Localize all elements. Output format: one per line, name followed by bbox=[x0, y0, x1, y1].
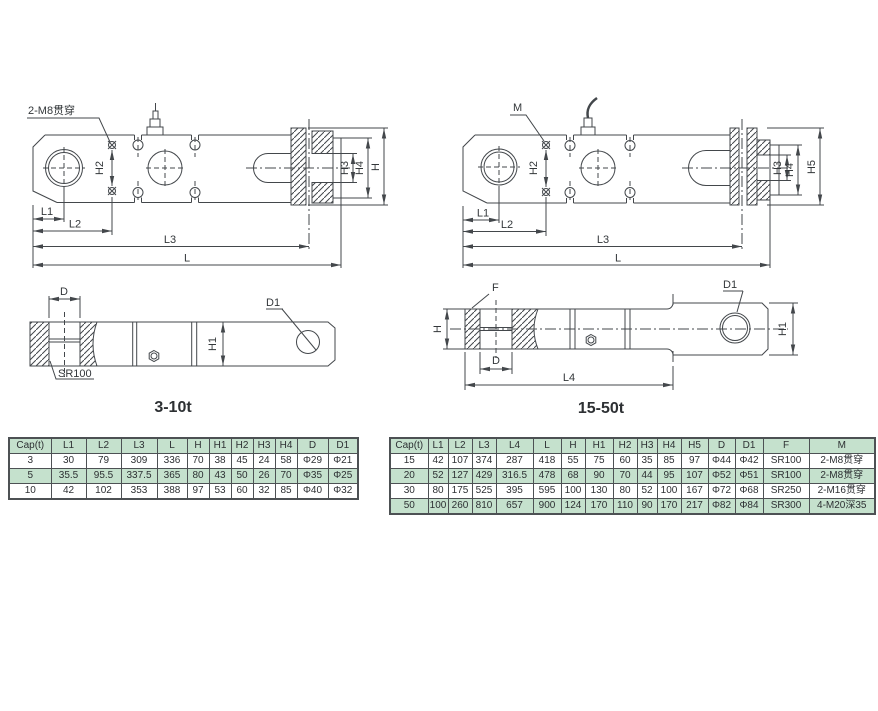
dim-label-h4: H4 bbox=[784, 163, 796, 177]
drawing-top-view-15-50t: F H D L4 D1 bbox=[435, 270, 845, 420]
column-header: H3 bbox=[253, 438, 275, 454]
table-row: 2052127429316.54786890704495107Φ52Φ51SR1… bbox=[390, 469, 875, 484]
table-cell: 337.5 bbox=[121, 469, 157, 484]
thread-callout-label: M bbox=[513, 102, 522, 114]
table-cell: 127 bbox=[448, 469, 472, 484]
table-cell: 110 bbox=[613, 499, 637, 515]
table-cell: 100 bbox=[657, 484, 681, 499]
table-cell: 15 bbox=[390, 454, 428, 469]
table-cell: 167 bbox=[681, 484, 708, 499]
dim-label-h3: H3 bbox=[339, 161, 351, 175]
table-row: 10421023533889753603285Φ40Φ32 bbox=[9, 484, 358, 500]
table-cell: 429 bbox=[472, 469, 496, 484]
body-steps bbox=[133, 322, 197, 366]
table-cell: 5 bbox=[9, 469, 51, 484]
column-header: L2 bbox=[448, 438, 472, 454]
column-header: L3 bbox=[472, 438, 496, 454]
column-header: H4 bbox=[275, 438, 297, 454]
table-row: 30801755253955951001308052100167Φ72Φ68SR… bbox=[390, 484, 875, 499]
column-header: H5 bbox=[681, 438, 708, 454]
table-cell: 365 bbox=[157, 469, 187, 484]
cable-gland bbox=[581, 98, 597, 135]
table-cell: 525 bbox=[472, 484, 496, 499]
column-header: L bbox=[157, 438, 187, 454]
table-cell: 53 bbox=[209, 484, 231, 500]
table-cell: Φ52 bbox=[708, 469, 735, 484]
table-cell: 79 bbox=[86, 454, 121, 469]
thread-holes-m8 bbox=[108, 141, 116, 195]
table-cell: Φ84 bbox=[735, 499, 763, 515]
column-header: H2 bbox=[231, 438, 253, 454]
table-cell: Φ29 bbox=[297, 454, 328, 469]
table-cell: 130 bbox=[585, 484, 613, 499]
dim-label-h5: H5 bbox=[806, 160, 818, 174]
table-row: 5010026081065790012417011090170217Φ82Φ84… bbox=[390, 499, 875, 515]
seal-screw bbox=[149, 351, 159, 362]
column-header: H1 bbox=[585, 438, 613, 454]
table-row: 535.595.5337.53658043502670Φ35Φ25 bbox=[9, 469, 358, 484]
table-cell: 107 bbox=[681, 469, 708, 484]
column-header: H2 bbox=[613, 438, 637, 454]
table-cell: Φ25 bbox=[328, 469, 358, 484]
column-header: L2 bbox=[86, 438, 121, 454]
table-cell: 70 bbox=[613, 469, 637, 484]
table-cell: Φ44 bbox=[708, 454, 735, 469]
drawing-side-view-15-50t: H2 M bbox=[435, 95, 845, 280]
table-cell: 52 bbox=[637, 484, 657, 499]
table-cell: 478 bbox=[533, 469, 561, 484]
table-cell: 2-M16贯穿 bbox=[809, 484, 875, 499]
table-cell: 35 bbox=[637, 454, 657, 469]
dim-label-h: H bbox=[370, 163, 382, 171]
drawing-title-3-10t: 3-10t bbox=[154, 399, 192, 416]
dim-label-f: F bbox=[492, 282, 499, 294]
beam-outline bbox=[33, 135, 291, 203]
column-header: H bbox=[187, 438, 209, 454]
table-cell: 595 bbox=[533, 484, 561, 499]
table-cell: 374 bbox=[472, 454, 496, 469]
table-cell: 336 bbox=[157, 454, 187, 469]
dim-label-l: L bbox=[184, 253, 190, 265]
center-bore bbox=[579, 149, 617, 187]
table-cell: 50 bbox=[390, 499, 428, 515]
table-cell: 2-M8贯穿 bbox=[809, 454, 875, 469]
table-cell: 24 bbox=[253, 454, 275, 469]
column-header: F bbox=[763, 438, 809, 454]
dim-label-d: D bbox=[492, 355, 500, 367]
column-header: L3 bbox=[121, 438, 157, 454]
dim-label-l3: L3 bbox=[164, 234, 176, 246]
table-cell: 30 bbox=[51, 454, 86, 469]
table-cell: 810 bbox=[472, 499, 496, 515]
table-cell: 124 bbox=[561, 499, 585, 515]
f-callout-leader bbox=[472, 294, 489, 308]
table-cell: Φ42 bbox=[735, 454, 763, 469]
table-cell: Φ21 bbox=[328, 454, 358, 469]
thread-callout-label: 2-M8贯穿 bbox=[28, 103, 75, 117]
column-header: D bbox=[708, 438, 735, 454]
table-cell: Φ82 bbox=[708, 499, 735, 515]
table-cell: SR300 bbox=[763, 499, 809, 515]
table-cell: 102 bbox=[86, 484, 121, 500]
drawing-side-view-3-10t: H2 2-M8贯穿 bbox=[15, 95, 395, 280]
table-cell: 50 bbox=[231, 469, 253, 484]
bar-outline bbox=[30, 322, 335, 366]
dim-label-h2: H2 bbox=[94, 161, 106, 175]
table-cell: 70 bbox=[187, 454, 209, 469]
column-header: L1 bbox=[428, 438, 448, 454]
table-cell: 80 bbox=[187, 469, 209, 484]
table-cell: SR100 bbox=[763, 469, 809, 484]
table-cell: 95.5 bbox=[86, 469, 121, 484]
spec-table-3-10t: Cap(t)L1L2L3LHH1H2H3H4DD1330793093367038… bbox=[8, 437, 359, 500]
dim-label-d: D bbox=[60, 286, 68, 298]
table-cell: 42 bbox=[51, 484, 86, 500]
column-header: H1 bbox=[209, 438, 231, 454]
dim-label-d1: D1 bbox=[723, 279, 737, 291]
table-cell: 309 bbox=[121, 454, 157, 469]
table-cell: 4-M20深35 bbox=[809, 499, 875, 515]
table-cell: 2-M8贯穿 bbox=[809, 469, 875, 484]
dim-label-h4: H4 bbox=[354, 161, 366, 175]
edge-notches bbox=[133, 135, 200, 203]
table-cell: 26 bbox=[253, 469, 275, 484]
table-cell: 170 bbox=[585, 499, 613, 515]
table-cell: 97 bbox=[187, 484, 209, 500]
table-cell: 68 bbox=[561, 469, 585, 484]
table-cell: 107 bbox=[448, 454, 472, 469]
header-row: Cap(t)L1L2L3LHH1H2H3H4DD1 bbox=[9, 438, 358, 454]
table-cell: 60 bbox=[613, 454, 637, 469]
table-cell: Φ35 bbox=[297, 469, 328, 484]
table-cell: 58 bbox=[275, 454, 297, 469]
table-cell: 80 bbox=[613, 484, 637, 499]
dim-label-l: L bbox=[615, 253, 621, 265]
column-header: H4 bbox=[657, 438, 681, 454]
dim-label-d1: D1 bbox=[266, 297, 280, 309]
dim-label-h2: H2 bbox=[528, 161, 540, 175]
table-cell: 217 bbox=[681, 499, 708, 515]
table-cell: 35.5 bbox=[51, 469, 86, 484]
table-cell: 70 bbox=[275, 469, 297, 484]
table-row: 330793093367038452458Φ29Φ21 bbox=[9, 454, 358, 469]
column-header: L4 bbox=[496, 438, 533, 454]
column-header: L1 bbox=[51, 438, 86, 454]
table-cell: SR250 bbox=[763, 484, 809, 499]
header-row: Cap(t)L1L2L3L4LHH1H2H3H4H5DD1FM bbox=[390, 438, 875, 454]
column-header: M bbox=[809, 438, 875, 454]
dim-label-l4: L4 bbox=[563, 372, 575, 384]
table-cell: SR100 bbox=[763, 454, 809, 469]
table-cell: 388 bbox=[157, 484, 187, 500]
table-cell: 10 bbox=[9, 484, 51, 500]
table-cell: 395 bbox=[496, 484, 533, 499]
dim-label-l1: L1 bbox=[477, 208, 489, 220]
column-header: Cap(t) bbox=[390, 438, 428, 454]
table-cell: Φ68 bbox=[735, 484, 763, 499]
dim-label-l3: L3 bbox=[597, 234, 609, 246]
table-cell: 55 bbox=[561, 454, 585, 469]
table-cell: 353 bbox=[121, 484, 157, 500]
column-header: H bbox=[561, 438, 585, 454]
table-cell: 287 bbox=[496, 454, 533, 469]
table-cell: Φ72 bbox=[708, 484, 735, 499]
table-cell: 60 bbox=[231, 484, 253, 500]
table-cell: 30 bbox=[390, 484, 428, 499]
cable-gland bbox=[147, 103, 163, 135]
table-cell: 80 bbox=[428, 484, 448, 499]
table-cell: Φ40 bbox=[297, 484, 328, 500]
dim-label-h3: H3 bbox=[772, 161, 784, 175]
bar-outline bbox=[450, 294, 788, 364]
table-cell: 75 bbox=[585, 454, 613, 469]
table-cell: 32 bbox=[253, 484, 275, 500]
thread-holes-m bbox=[542, 141, 550, 196]
table-cell: 95 bbox=[657, 469, 681, 484]
spec-table-15-50t: Cap(t)L1L2L3L4LHH1H2H3H4H5DD1FM154210737… bbox=[389, 437, 876, 515]
dim-label-h1: H1 bbox=[207, 337, 219, 351]
table-cell: 90 bbox=[585, 469, 613, 484]
table-cell: 260 bbox=[448, 499, 472, 515]
table-cell: 43 bbox=[209, 469, 231, 484]
column-header: D bbox=[297, 438, 328, 454]
table-cell: 20 bbox=[390, 469, 428, 484]
load-button-section bbox=[246, 119, 350, 250]
thread-callout-leader bbox=[510, 115, 544, 141]
table-cell: 100 bbox=[428, 499, 448, 515]
dim-label-l1: L1 bbox=[41, 206, 53, 218]
table-cell: 44 bbox=[637, 469, 657, 484]
table-cell: 316.5 bbox=[496, 469, 533, 484]
column-header: Cap(t) bbox=[9, 438, 51, 454]
seal-screw bbox=[586, 335, 596, 346]
table-cell: 85 bbox=[657, 454, 681, 469]
table-cell: 38 bbox=[209, 454, 231, 469]
table-cell: 45 bbox=[231, 454, 253, 469]
table-cell: 42 bbox=[428, 454, 448, 469]
column-header: D1 bbox=[328, 438, 358, 454]
table-cell: 100 bbox=[561, 484, 585, 499]
table-cell: 52 bbox=[428, 469, 448, 484]
table-cell: 418 bbox=[533, 454, 561, 469]
d1-hole bbox=[266, 309, 320, 354]
table-row: 1542107374287418557560358597Φ44Φ42SR1002… bbox=[390, 454, 875, 469]
edge-notches bbox=[565, 135, 635, 203]
table-cell: 85 bbox=[275, 484, 297, 500]
datasheet-page: H2 2-M8贯穿 bbox=[0, 0, 878, 711]
drawing-top-view-3-10t: D SR100 H1 D1 3-10t bbox=[10, 273, 385, 420]
center-bore bbox=[146, 149, 184, 187]
d1-hole bbox=[720, 291, 750, 343]
table-cell: 175 bbox=[448, 484, 472, 499]
table-cell: 900 bbox=[533, 499, 561, 515]
table-cell: Φ51 bbox=[735, 469, 763, 484]
dim-label-l2: L2 bbox=[501, 219, 513, 231]
table-cell: 170 bbox=[657, 499, 681, 515]
sr-callout-label: SR100 bbox=[58, 368, 92, 380]
column-header: D1 bbox=[735, 438, 763, 454]
table-cell: 657 bbox=[496, 499, 533, 515]
thread-callout-leader bbox=[27, 118, 110, 142]
load-button-section bbox=[682, 119, 790, 250]
dim-label-h: H bbox=[432, 325, 444, 333]
dim-label-l2: L2 bbox=[69, 219, 81, 231]
drawing-title-15-50t: 15-50t bbox=[578, 400, 625, 417]
table-cell: 97 bbox=[681, 454, 708, 469]
dim-label-h1: H1 bbox=[777, 322, 789, 336]
column-header: L bbox=[533, 438, 561, 454]
column-header: H3 bbox=[637, 438, 657, 454]
table-cell: Φ32 bbox=[328, 484, 358, 500]
table-cell: 90 bbox=[637, 499, 657, 515]
beam-outline bbox=[463, 135, 730, 203]
table-cell: 3 bbox=[9, 454, 51, 469]
